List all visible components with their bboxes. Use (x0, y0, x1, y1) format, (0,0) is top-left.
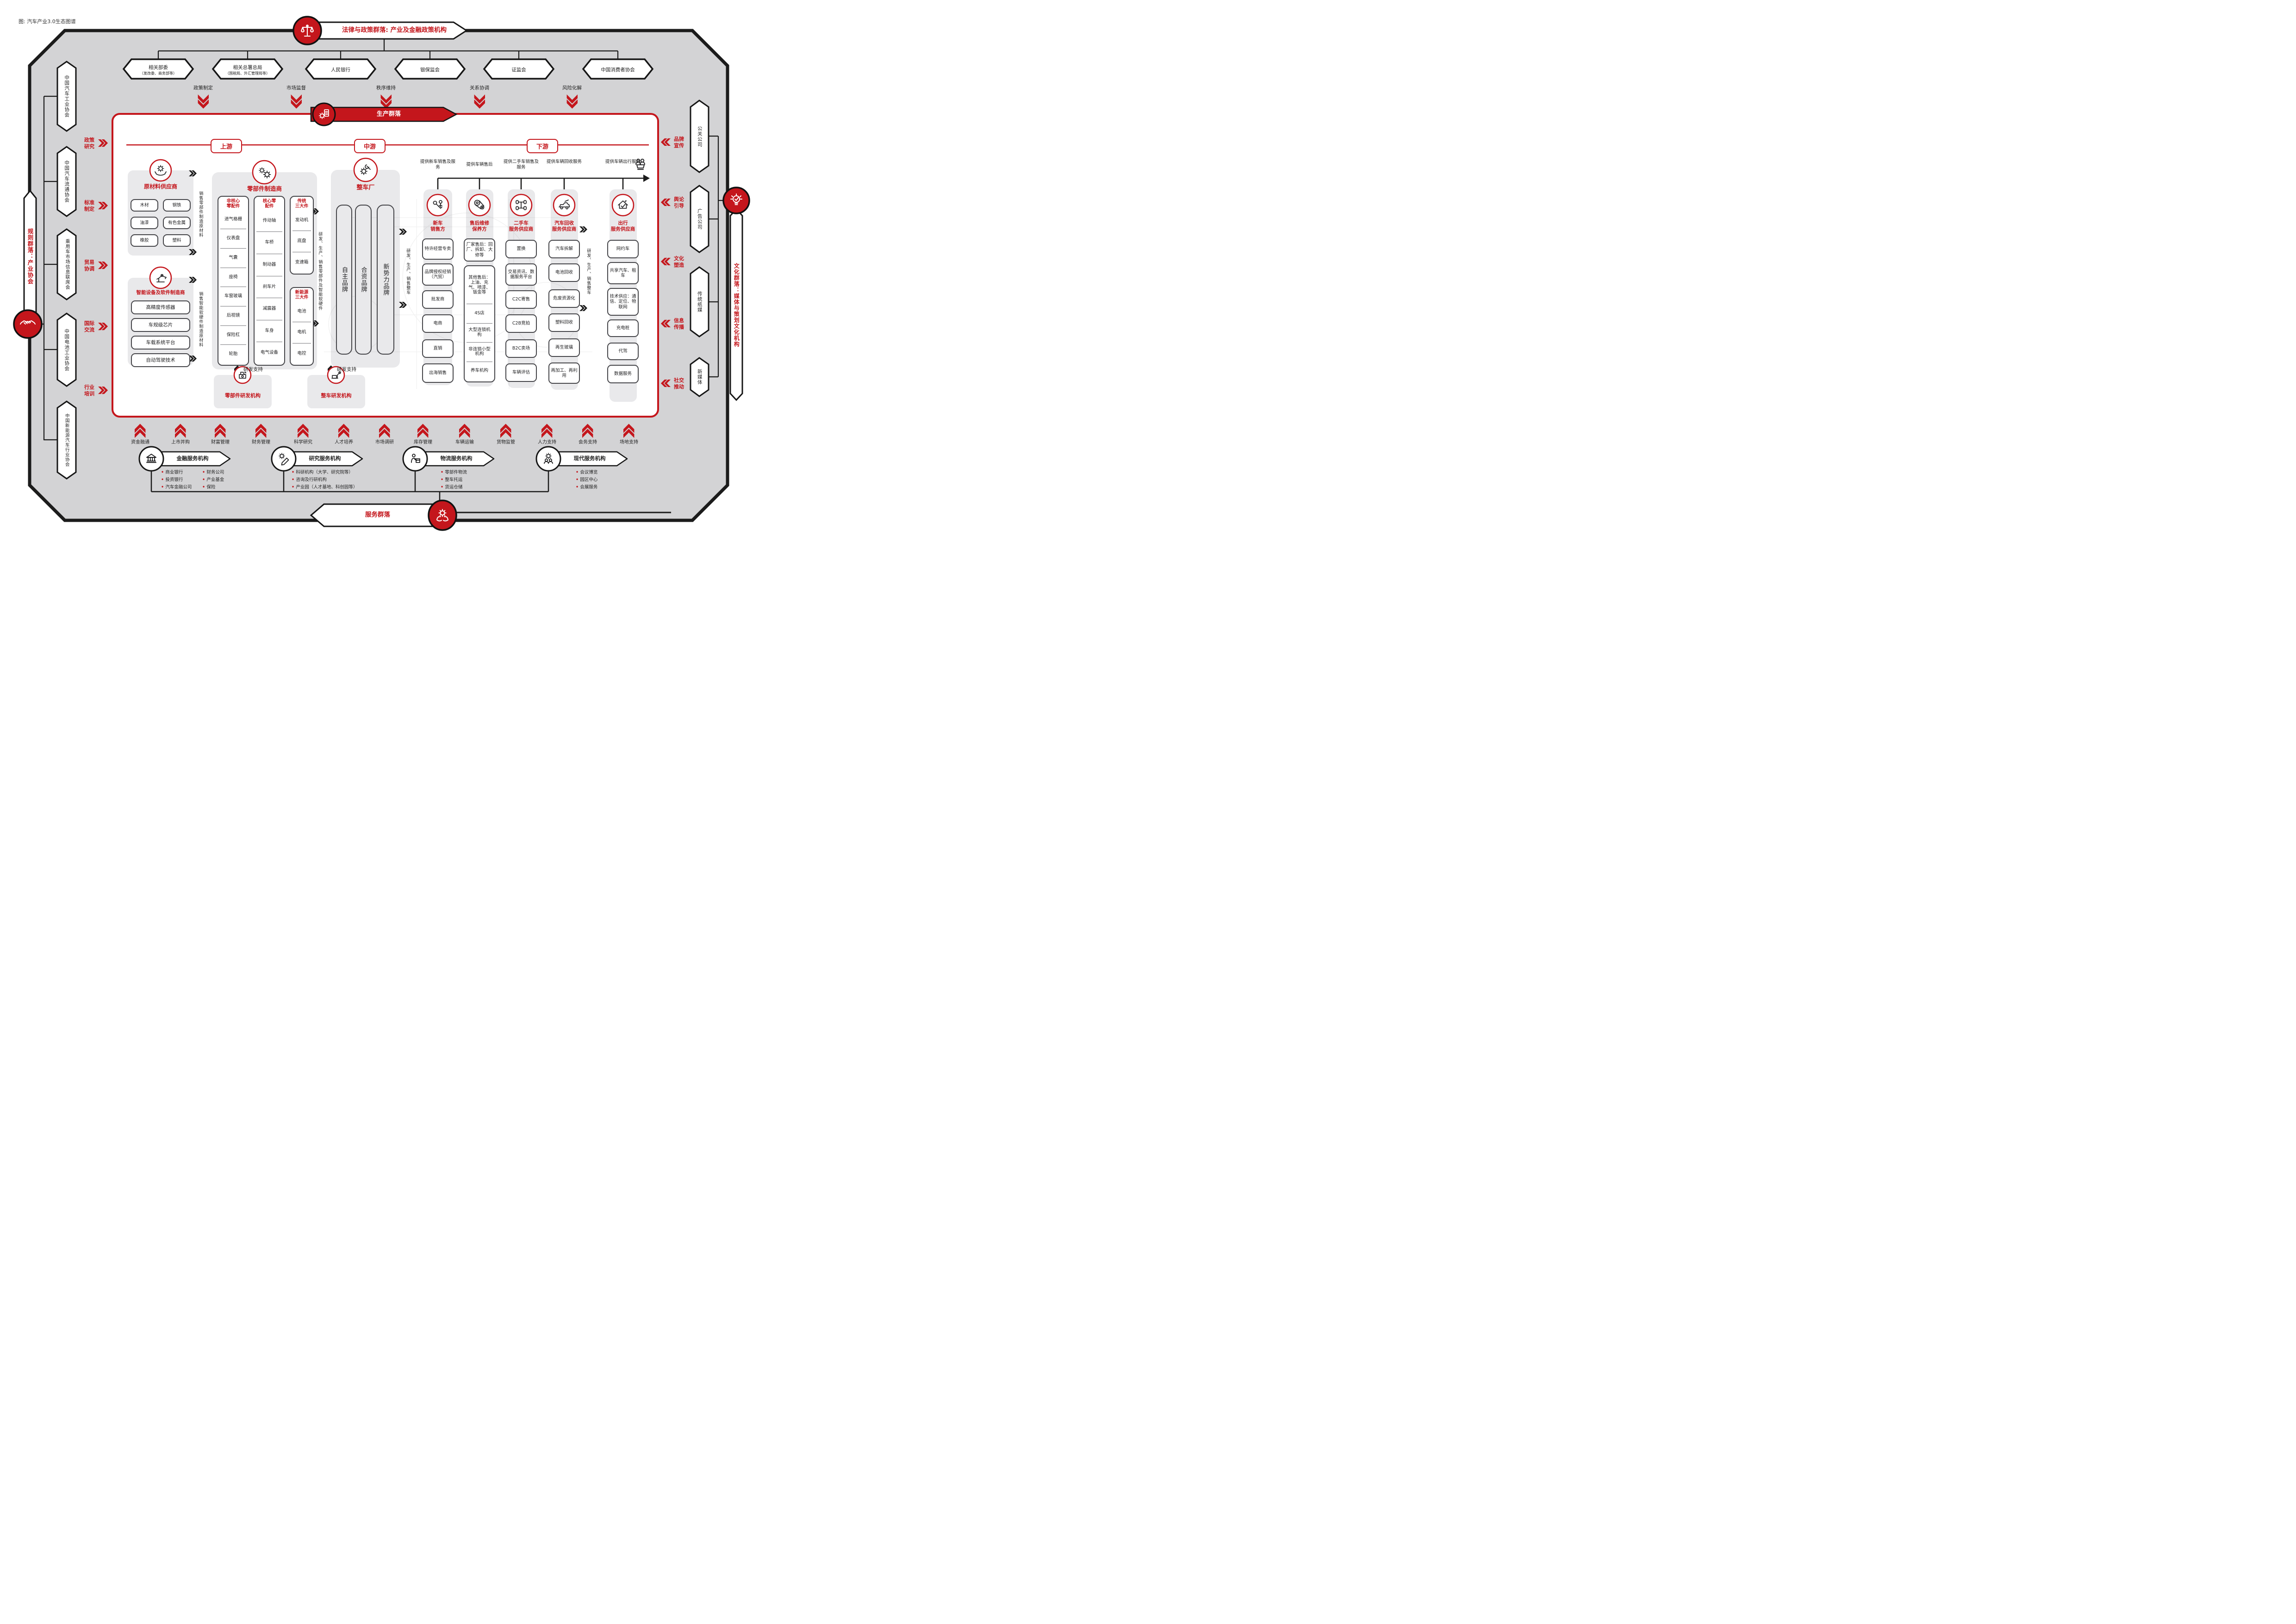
parts-title: 零部件制造商 (234, 185, 295, 192)
svc-flow-label: 人才培养 (327, 440, 361, 445)
stage-downstream: 下游 (527, 139, 558, 153)
culture-flow-label: 社交推动 (672, 377, 686, 390)
recycle-item: 塑料回收 (548, 313, 580, 332)
aftersales-others-box: 其他售后：上油、充气、喷漆、钣金等 4S店 大型连锁机构 非连锁小型机构 养车机… (464, 265, 495, 382)
svc-item: 产业基金 (202, 476, 224, 482)
culture-org: 广告公司 (691, 189, 709, 249)
parts-research-box (214, 375, 272, 408)
svc-item: 零部件物流 (441, 468, 467, 475)
bank-icon (147, 454, 156, 462)
law-flow-label: 关系协调 (459, 85, 500, 91)
law-org: 中国消费者协会 (585, 61, 651, 79)
svc-flow-label: 财富管理 (204, 440, 237, 445)
svc-flow-label: 库存管理 (406, 440, 440, 445)
diagram-caption: 图: 汽车产业3.0生态图谱 (19, 19, 157, 25)
usedcar-item: 交易资讯、数据服务平台 (505, 263, 537, 286)
rules-org: 中国汽车流通协会 (57, 150, 76, 213)
svc-item: 商业银行 (161, 468, 183, 475)
newcar-item: 品牌授权经销（汽贸） (422, 263, 454, 286)
mobility-item: 技术供应：通信、定位、物联网 (607, 288, 639, 316)
oem-brand: 新势力品牌 (377, 205, 394, 355)
svc-flow-label: 上市并购 (164, 440, 197, 445)
parts-col-core: 核心零配件 传动轴 车桥 制动器 刹车片 减震器 车身 电气设备 (254, 196, 285, 366)
law-flow-chevrons (198, 94, 578, 109)
rules-cluster-badge (14, 310, 42, 338)
svc-flow-label: 财务管理 (244, 440, 278, 445)
recycle-item: 再加工、再利用 (548, 362, 580, 384)
smart-item: 车规级芯片 (131, 318, 190, 332)
production-banner-title: 生产群落 (342, 111, 435, 118)
rules-connectors (41, 96, 57, 440)
recycle-item: 危废资源化 (548, 289, 580, 308)
recycle-item: 再生玻璃 (548, 338, 580, 357)
svc-flow-label: 市场调研 (368, 440, 401, 445)
downstream-header: 提供车辆售后 (462, 162, 497, 168)
recycle-item: 汽车拆解 (548, 240, 580, 258)
rules-flow-label: 国际交流 (82, 320, 96, 333)
culture-org: 公关公司 (691, 104, 709, 169)
mobility-item: 共享汽车、租车 (607, 262, 639, 284)
rules-flow-label: 行业培训 (82, 384, 96, 397)
culture-flow-label: 信息传播 (672, 318, 686, 331)
law-org: 人民银行 (307, 61, 374, 79)
culture-connectors (709, 136, 723, 377)
law-flow-label: 市场监督 (275, 85, 317, 91)
svc-item: 投资银行 (161, 476, 183, 482)
usedcar-item: C2C寄售 (505, 290, 537, 309)
rules-org: 乘用车市场信息联席会 (57, 232, 76, 296)
law-org: 相关部委（发改委、商务部等） (125, 61, 192, 79)
smart-item: 高精度传感器 (131, 300, 190, 314)
downstream-title-mobility: 出行服务供应商 (609, 220, 637, 232)
law-flow-label: 秩序维持 (365, 85, 407, 91)
downstream-title-usedcar: 二手车服务供应商 (507, 220, 535, 232)
rnd-support-label: 研发支持 (337, 367, 365, 373)
usedcar-item: 车辆评估 (505, 363, 537, 382)
flow-rnd-oem-2: 研发、生产、销售整车 (582, 241, 594, 302)
newcar-item: 直销 (422, 339, 454, 358)
raw-item: 木材 (131, 199, 158, 212)
svc-flow-label: 人力支持 (530, 440, 564, 445)
law-cluster-badge (293, 17, 321, 44)
raw-item: 钢铁 (163, 199, 191, 212)
newcar-item: 批发商 (422, 290, 454, 309)
culture-banner-title: 文化群落：媒体与策划文化机构 (730, 219, 742, 391)
mobility-item: 代驾 (607, 343, 639, 360)
svc-group-title: 金融服务机构 (163, 456, 222, 462)
flow-sell-smart-raw: 销售智能软硬件制造原材料 (194, 285, 206, 354)
aftersales-factory: 厂家售后：回厂、拆卸、大修等 (464, 238, 495, 262)
oem-research-box (307, 375, 365, 408)
parts-col-ev3: 新能源三大件 电池 电机 电控 (290, 287, 314, 366)
rules-org: 中国新能源汽车行业协会 (57, 405, 76, 475)
svc-item: 货运仓储 (441, 483, 462, 490)
ecosystem-diagram: 图: 汽车产业3.0生态图谱 法律与政策群落: 产业及金融政策机构 相关部委（发… (0, 0, 765, 541)
smart-item: 自动驾驶技术 (131, 353, 190, 367)
stage-upstream: 上游 (211, 139, 242, 153)
lightbulb-check-icon (731, 194, 742, 205)
parts-col-traditional3: 传统三大件 发动机 底盘 变速箱 (290, 196, 314, 275)
downstream-header: 提供新车销售及服务 (420, 159, 455, 170)
courier-icon (411, 454, 420, 462)
oem-title: 整车厂 (338, 184, 393, 192)
svc-flow-label: 资金融通 (124, 440, 157, 445)
culture-cluster-badge (723, 187, 749, 213)
culture-flow-label: 舆论引导 (672, 196, 686, 209)
svc-item: 园区中心 (576, 476, 597, 482)
svc-flow-label: 科学研究 (286, 440, 320, 445)
svc-item: 咨询及行研机构 (292, 476, 327, 482)
svc-flow-label: 场地支持 (612, 440, 646, 445)
rules-banner-title: 规则群落：产业协会 (24, 200, 36, 313)
law-org: 银保监会 (397, 61, 463, 79)
rules-flow-label: 标准制定 (82, 200, 96, 212)
usedcar-item: C2B竞拍 (505, 314, 537, 333)
stage-midstream: 中游 (354, 139, 386, 153)
svc-item: 财务公司 (202, 468, 224, 475)
recycle-item: 电池回收 (548, 263, 580, 282)
service-cluster-badge (429, 500, 456, 530)
svc-flow-label: 会务支持 (571, 440, 604, 445)
svc-item: 科研机构（大学、研究院等） (292, 468, 353, 475)
svc-flow-label: 货物监管 (489, 440, 523, 445)
raw-item: 有色金属 (163, 217, 191, 229)
culture-flow-chevrons (661, 138, 671, 387)
service-banner-title: 服务群落 (326, 511, 429, 518)
culture-org: 新媒体 (691, 360, 709, 394)
downstream-header: 提供二手车销售及服务 (504, 159, 539, 170)
law-flow-label: 风险化解 (551, 85, 593, 91)
law-connectors (158, 39, 618, 59)
downstream-title-newcar: 新车销售方 (423, 220, 452, 232)
smart-title: 智能设备及软件制造商 (129, 290, 193, 296)
smart-item: 车载系统平台 (131, 336, 190, 350)
culture-flow-label: 品牌宣传 (672, 136, 686, 149)
downstream-title-aftersales: 售后维修保养方 (465, 220, 494, 232)
law-org: 证监会 (485, 61, 552, 79)
law-org: 相关总署总局（国税局、外汇管理局等） (214, 61, 281, 79)
rules-org: 中国汽车工业协会 (57, 65, 76, 128)
people-gear-icon (544, 453, 553, 463)
svc-group-title: 研究服务机构 (296, 456, 354, 462)
downstream-title-recycle: 汽车回收服务供应商 (550, 220, 579, 232)
law-flow-label: 政策制定 (182, 85, 224, 91)
rules-flow-chevrons (98, 139, 108, 394)
law-banner-title: 法律与政策群落: 产业及金融政策机构 (325, 26, 464, 34)
flow-rnd-parts: 研发、生产、销售零部件及智能软硬件 (314, 223, 326, 319)
svc-group-title: 现代服务机构 (560, 456, 619, 462)
culture-flow-label: 文化塑造 (672, 256, 686, 269)
flow-sell-parts-raw: 销售零部件制造原材料 (194, 181, 206, 248)
oem-brand: 合资品牌 (355, 205, 372, 355)
rules-flow-label: 政策研究 (82, 137, 96, 150)
rules-org: 中国电池工业协会 (57, 317, 76, 383)
usedcar-item: 置换 (505, 240, 537, 258)
flow-rnd-oem: 研发、生产、销售整车 (402, 243, 414, 301)
handshake-icon (20, 321, 35, 324)
downstream-header: 提供车辆出行服务 (605, 159, 641, 165)
newcar-item: 电商 (422, 314, 454, 333)
raw-item: 橡胶 (131, 234, 158, 247)
svc-group-title: 物流服务机构 (427, 456, 485, 462)
svc-item: 产业园（人才基地、科创园等） (292, 483, 357, 490)
pencil-gear-icon (279, 453, 289, 465)
downstream-col-usedcar (508, 189, 535, 388)
mobility-item: 数据服务 (607, 365, 639, 383)
svc-item: 汽车金融公司 (161, 483, 192, 490)
parts-col-noncore: 非核心零配件 进气格栅 仪表盘 气囊 座椅 车窗玻璃 后视镜 保险杠 轮胎 (218, 196, 249, 366)
law-org-hexagons (124, 59, 653, 79)
parts-research-label: 零部件研发机构 (215, 393, 271, 399)
svc-item: 会议博览 (576, 468, 597, 475)
culture-org: 传统纸媒 (691, 270, 709, 333)
usedcar-item: B2C卖场 (505, 339, 537, 358)
svc-item: 保险 (202, 483, 215, 490)
svc-item: 会展服务 (576, 483, 597, 490)
scales-icon (301, 25, 313, 36)
rules-flow-label: 贸易协调 (82, 259, 96, 272)
hands-gear-icon (437, 510, 448, 521)
raw-item: 油漆 (131, 217, 158, 229)
oem-brand: 自主品牌 (336, 205, 352, 355)
svc-item: 整车托运 (441, 476, 462, 482)
mobility-item: 网约车 (607, 240, 639, 258)
mobility-item: 充电桩 (607, 319, 639, 337)
svc-flow-label: 车辆运输 (448, 440, 481, 445)
oem-research-label: 整车研发机构 (308, 393, 364, 399)
raw-title: 原材料供应商 (130, 183, 191, 190)
downstream-header: 提供车辆回收服务 (547, 159, 582, 165)
newcar-item: 出海销售 (422, 363, 454, 383)
service-flow-chevrons (135, 424, 634, 438)
rnd-support-label: 研发支持 (243, 367, 271, 373)
newcar-item: 特许经营专卖 (422, 238, 454, 260)
raw-item: 塑料 (163, 234, 191, 247)
